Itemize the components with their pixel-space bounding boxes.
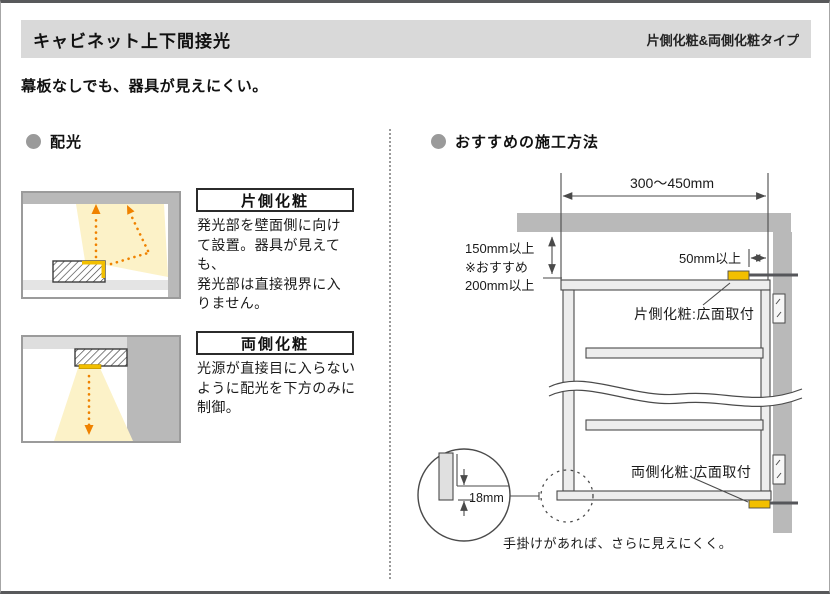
top-fixture xyxy=(728,271,749,280)
column-divider xyxy=(389,129,391,579)
bottom-fixture-label: 両側化粧:広面取付 xyxy=(631,462,751,482)
header-bar: キャビネット上下間接光 片側化粧&両側化粧タイプ xyxy=(21,20,811,58)
distribution-diagram-both-side xyxy=(21,335,181,443)
section-bullet-icon xyxy=(431,134,446,149)
label-one-side-finish: 片側化粧 xyxy=(196,188,354,212)
height-dimension-label: 150mm以上 ※おすすめ 200mm以上 xyxy=(465,240,534,296)
gap-dimension-label: 50mm以上 xyxy=(679,250,741,269)
top-fixture-label: 片側化粧:広面取付 xyxy=(634,304,754,324)
section-heading-label: 配光 xyxy=(50,131,82,152)
subtitle: 幕板なしでも、器具が見えにくい。 xyxy=(21,75,268,96)
description-both-side: 光源が直接目に入らない ように配光を下方のみに 制御。 xyxy=(197,359,365,418)
handle-note: 手掛けがあれば、さらに見えにくく。 xyxy=(503,533,732,552)
handle-depth-label: 18mm xyxy=(469,491,504,505)
section-heading-installation: おすすめの施工方法 xyxy=(431,131,599,152)
ceiling-section xyxy=(517,213,791,232)
wall-section xyxy=(773,232,792,533)
section-heading-label: おすすめの施工方法 xyxy=(455,131,599,152)
bottom-fixture xyxy=(749,500,770,508)
emitting-part xyxy=(79,365,101,369)
page-title: キャビネット上下間接光 xyxy=(33,27,231,52)
label-both-side-text: 両側化粧 xyxy=(241,333,309,354)
catalog-page: キャビネット上下間接光 片側化粧&両側化粧タイプ 幕板なしでも、器具が見えにくい… xyxy=(0,0,830,594)
section-bullet-icon xyxy=(26,134,41,149)
type-label: 片側化粧&両側化粧タイプ xyxy=(647,30,799,49)
width-dimension-label: 300〜450mm xyxy=(572,173,772,193)
luminaire-section xyxy=(75,349,127,366)
label-both-side-finish: 両側化粧 xyxy=(196,331,354,355)
label-one-side-text: 片側化粧 xyxy=(241,190,309,211)
description-one-side: 発光部を壁面側に向け て設置。器具が見えても、 発光部は直接視界に入 りません。 xyxy=(197,216,365,314)
detail-door-panel xyxy=(439,453,453,500)
installation-diagram xyxy=(396,163,830,583)
distribution-diagram-one-side xyxy=(21,191,181,299)
section-heading-distribution: 配光 xyxy=(26,131,82,152)
